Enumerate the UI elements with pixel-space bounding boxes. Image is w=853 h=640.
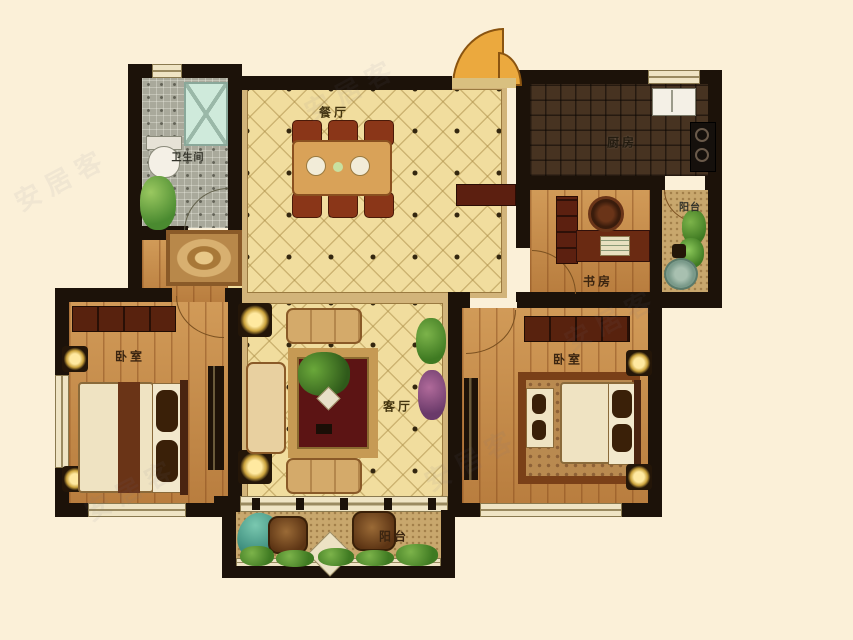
wall	[705, 176, 722, 190]
wardrobe	[524, 316, 630, 342]
label-kitchen: 厨房	[607, 134, 637, 151]
sofa	[286, 458, 362, 494]
kitchen-sink	[652, 88, 696, 116]
shower-stall	[184, 82, 228, 146]
bed-runner	[118, 382, 140, 493]
balcony-stool	[268, 516, 308, 554]
greenery	[240, 546, 274, 566]
nightstand-lamp	[62, 346, 88, 372]
bathroom-top-window	[152, 64, 182, 78]
wall	[622, 503, 662, 517]
headboard	[634, 380, 641, 466]
left-bedroom-window	[88, 503, 186, 517]
wall	[225, 288, 242, 302]
wall	[650, 190, 662, 295]
pillow	[612, 424, 632, 452]
nightstand-lamp	[626, 350, 652, 376]
place-setting	[306, 156, 326, 176]
window-post	[340, 498, 348, 510]
balcony-table	[664, 258, 698, 290]
wall	[242, 76, 452, 90]
nightstand-lamp	[626, 464, 652, 490]
greenery	[276, 550, 314, 567]
wall	[128, 64, 142, 302]
greenery	[318, 548, 354, 566]
desk-chair	[588, 196, 624, 232]
bathroom-plant	[140, 176, 176, 230]
wall	[55, 288, 172, 302]
label-balcony-bottom: 阳台	[379, 528, 409, 545]
rug-item	[316, 424, 332, 434]
kitchen-window	[648, 70, 700, 84]
label-bedroom-left: 卧室	[115, 348, 145, 365]
label-bathroom: 卫生间	[172, 149, 205, 164]
flower-stand	[418, 370, 446, 420]
pillow	[612, 390, 632, 418]
wall	[516, 70, 530, 248]
place-setting	[350, 156, 370, 176]
window-post	[296, 498, 304, 510]
wall	[55, 503, 88, 517]
burner	[695, 128, 709, 142]
bench-cushion	[532, 420, 546, 440]
centerpiece	[333, 162, 343, 172]
entrance-threshold	[452, 78, 516, 88]
window-post	[428, 498, 436, 510]
wardrobe	[72, 306, 176, 332]
corner-lamp	[238, 303, 272, 337]
wall	[530, 176, 665, 190]
sofa	[286, 308, 362, 344]
window-post	[384, 498, 392, 510]
bookshelf	[556, 196, 578, 264]
wall	[517, 292, 722, 308]
greenery	[396, 544, 438, 566]
label-dining: 餐厅	[319, 104, 349, 121]
watermark: 安居客	[7, 138, 114, 219]
wall	[228, 64, 242, 240]
left-bedroom-side-window	[55, 375, 69, 468]
balcony-pot	[672, 244, 686, 258]
burner	[695, 148, 709, 162]
corner-lamp	[238, 450, 272, 484]
label-study: 书房	[583, 273, 613, 290]
bed-mattress	[78, 382, 154, 493]
right-bedroom-window	[480, 503, 622, 517]
label-balcony-right: 阳台	[679, 199, 701, 214]
headboard	[180, 380, 188, 495]
pillow	[156, 440, 178, 482]
sofa	[246, 362, 286, 454]
desk-papers	[600, 236, 630, 256]
greenery	[356, 550, 394, 566]
label-bedroom-right: 卧室	[553, 351, 583, 368]
window-post	[252, 498, 260, 510]
entry-cabinet	[456, 184, 516, 206]
dresser	[208, 366, 224, 470]
wall	[516, 70, 648, 84]
plant-stand	[416, 318, 446, 364]
wall	[448, 292, 462, 517]
tv-cabinet	[464, 378, 478, 480]
hallway-rug	[166, 230, 242, 286]
sink-divider	[671, 90, 673, 112]
label-living: 客厅	[383, 398, 413, 415]
bench-cushion	[532, 394, 546, 414]
pillow	[156, 390, 178, 432]
floor-plan: 餐厅 卫生间 厨房 阳台 书房 卧室 客厅 卧室 阳台 安居客 安居客 安居客 …	[0, 0, 853, 640]
